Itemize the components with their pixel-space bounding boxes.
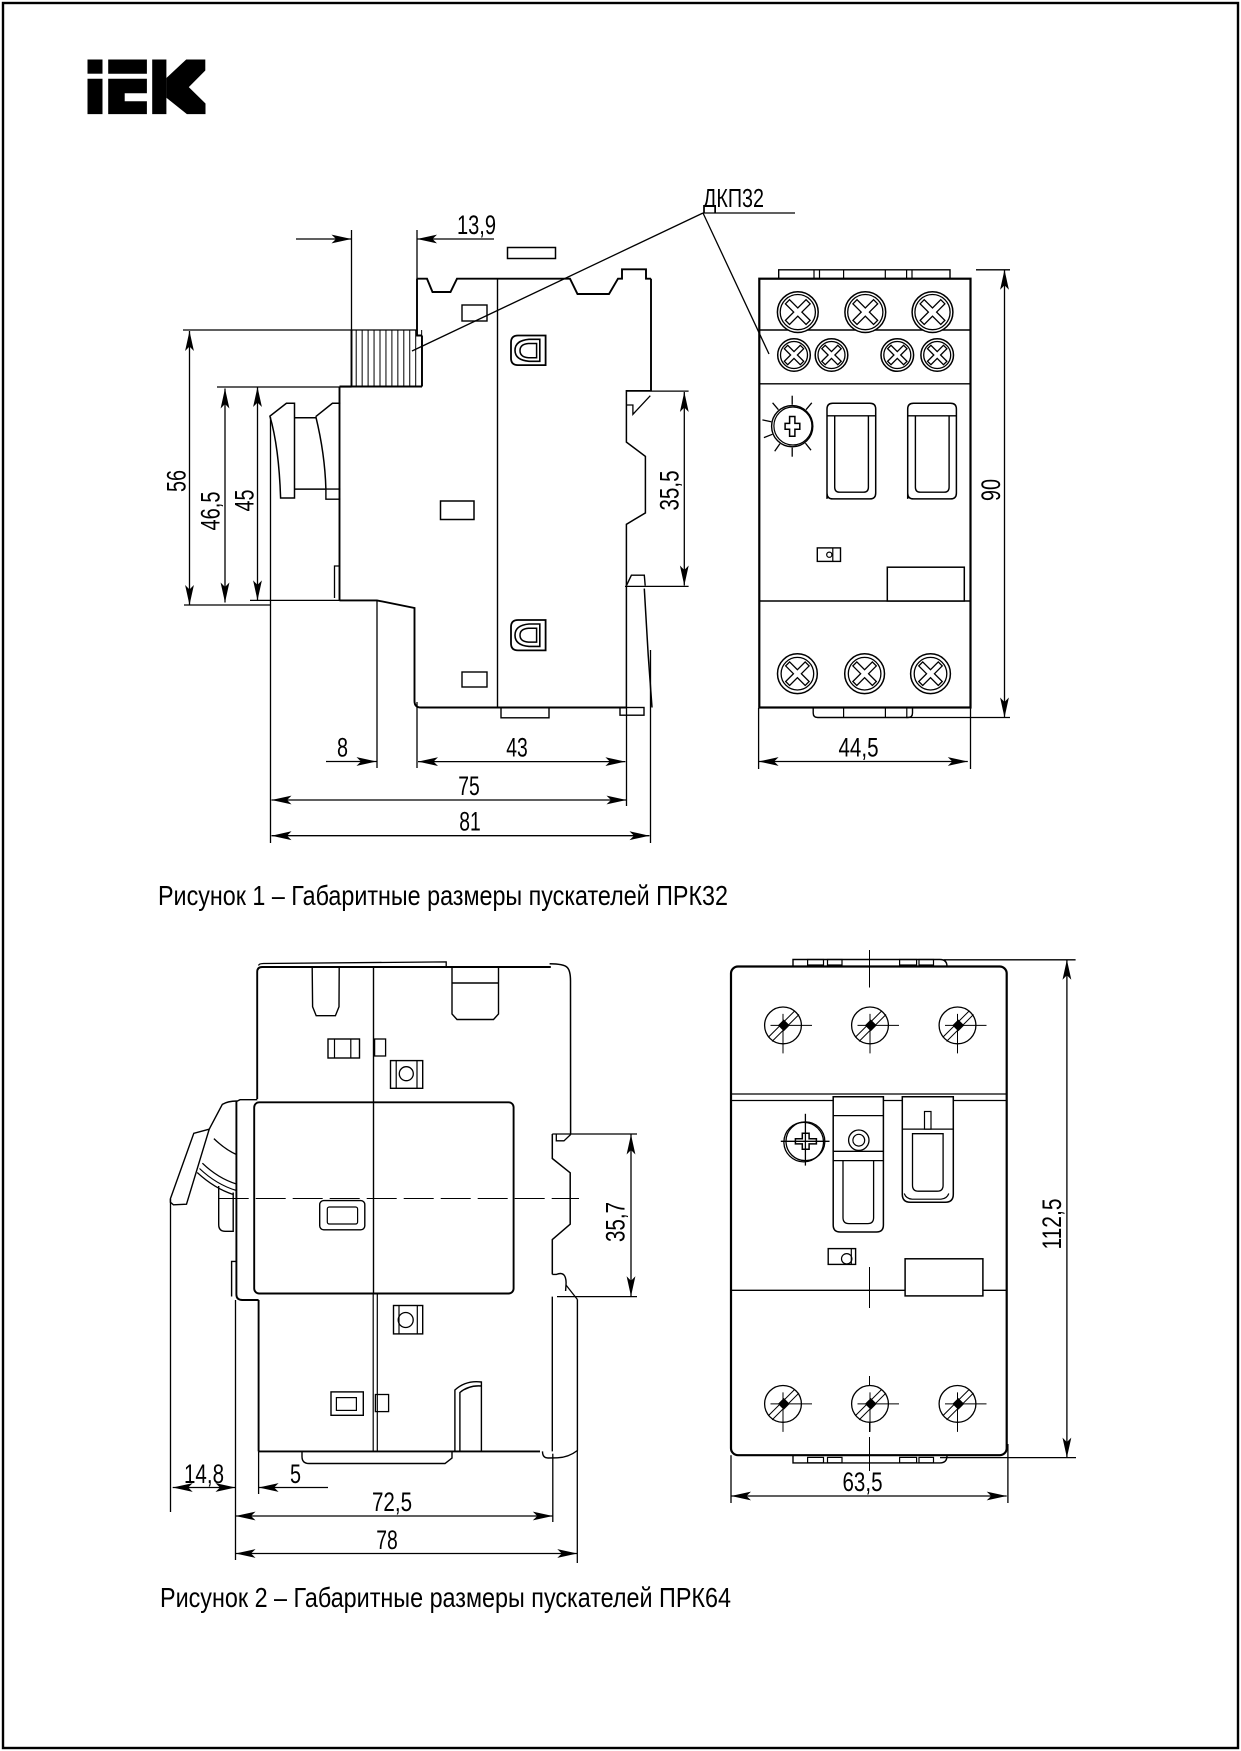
svg-text:ДКП32: ДКП32 [703, 183, 764, 213]
svg-text:13,9: 13,9 [457, 210, 496, 240]
svg-text:14,8: 14,8 [184, 1459, 224, 1489]
svg-text:45: 45 [229, 490, 259, 512]
svg-text:44,5: 44,5 [839, 733, 879, 763]
svg-text:35,5: 35,5 [655, 471, 685, 511]
svg-text:112,5: 112,5 [1037, 1199, 1067, 1250]
svg-text:81: 81 [459, 807, 481, 837]
svg-text:35,7: 35,7 [601, 1202, 631, 1242]
svg-text:56: 56 [161, 470, 191, 492]
svg-text:46,5: 46,5 [196, 492, 226, 531]
svg-text:63,5: 63,5 [843, 1467, 883, 1497]
svg-text:75: 75 [458, 771, 480, 801]
svg-text:72,5: 72,5 [372, 1487, 412, 1517]
svg-text:Рисунок 1 – Габаритные размеры: Рисунок 1 – Габаритные размеры пускателе… [158, 880, 728, 911]
svg-text:5: 5 [290, 1459, 301, 1489]
svg-text:8: 8 [337, 733, 348, 763]
svg-text:Рисунок 2 – Габаритные размеры: Рисунок 2 – Габаритные размеры пускателе… [160, 1582, 731, 1613]
svg-text:43: 43 [506, 733, 528, 763]
svg-text:90: 90 [976, 479, 1006, 501]
svg-text:78: 78 [376, 1525, 398, 1555]
